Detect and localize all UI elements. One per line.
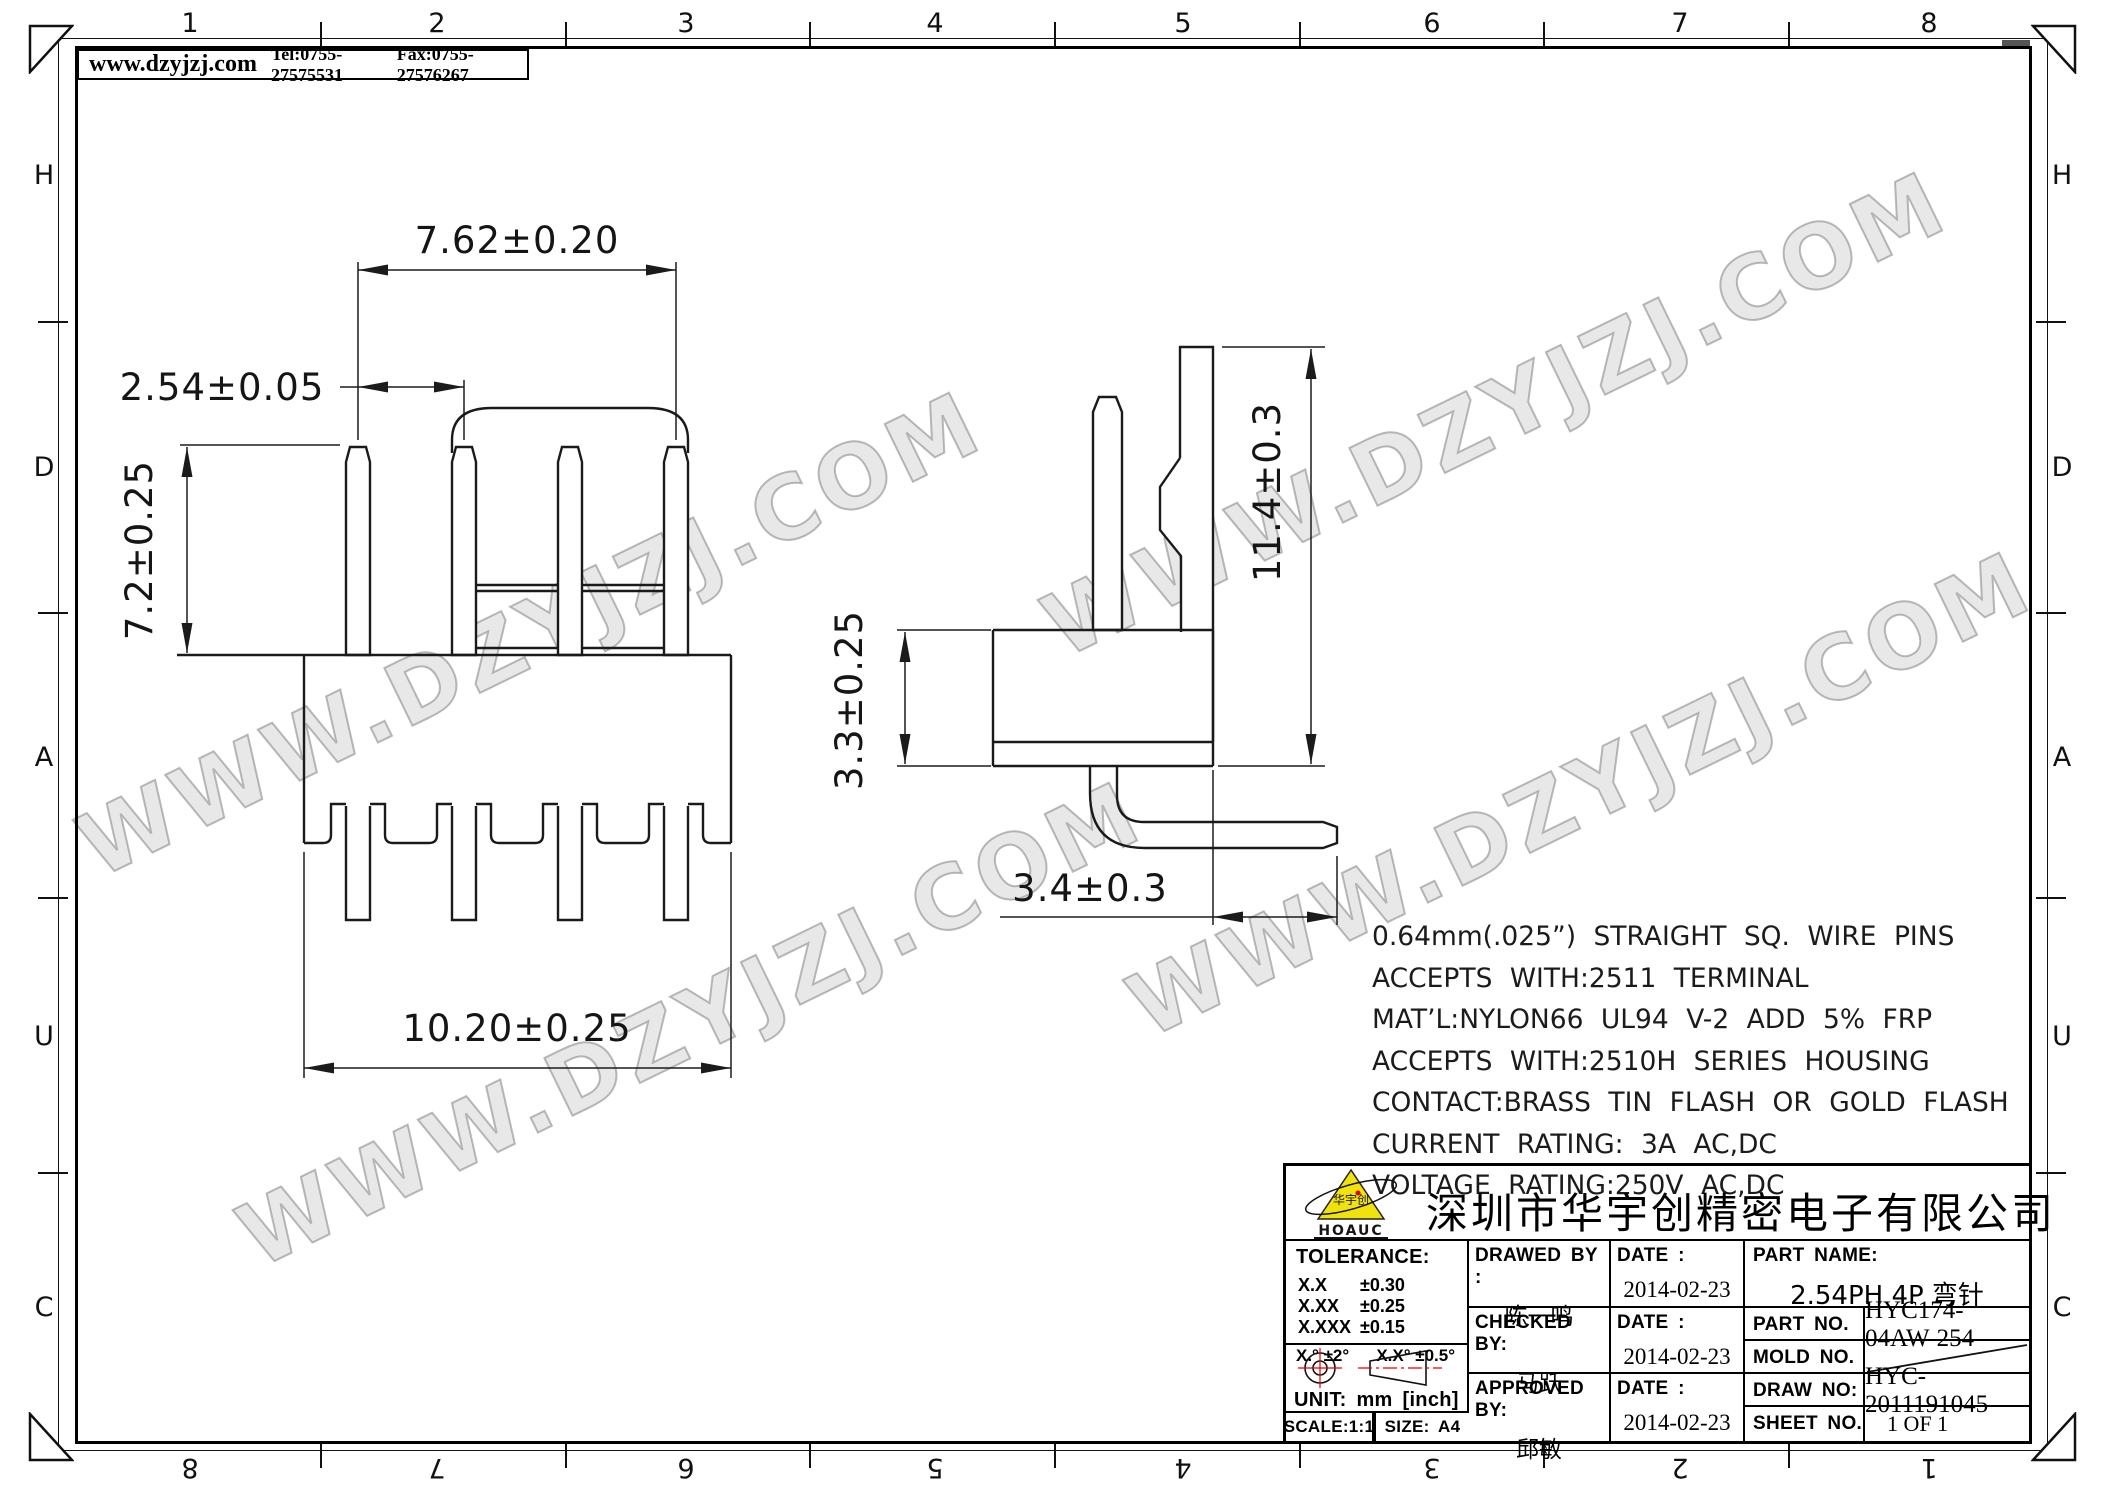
projection-symbol-icon (1286, 1345, 1469, 1389)
date-label: DATE : (1617, 1312, 1737, 1334)
dim-overall-height: 11.4±0.3 (1246, 402, 1289, 582)
logo-name: HOAUC (1318, 1223, 1383, 1239)
approved-by-cell: APPROVED BY: 邱敏 (1469, 1374, 1611, 1441)
drawed-date: 2014-02-23 (1617, 1277, 1737, 1303)
date-label: DATE : (1617, 1378, 1737, 1400)
logo-dot-icon (1356, 1191, 1361, 1196)
checked-date: 2014-02-23 (1617, 1344, 1737, 1370)
approved-by-label: APPROVED BY: (1475, 1378, 1603, 1422)
spec-note-line: MAT’L:NYLON66 UL94 V-2 ADD 5% FRP (1372, 999, 2037, 1041)
spec-note-line: ACCEPTS WITH:2510H SERIES HOUSING (1372, 1041, 2037, 1083)
drawed-date-cell: DATE : 2014-02-23 (1611, 1241, 1745, 1308)
tolerance-row-value: ±0.30 (1360, 1275, 1405, 1296)
draw-no-label: DRAW NO: (1745, 1374, 1865, 1407)
approved-date: 2014-02-23 (1617, 1410, 1737, 1436)
sheet-no-label: SHEET NO. (1745, 1407, 1865, 1441)
tolerance-cell: TOLERANCE: X.X±0.30 X.XX±0.25 X.XXX±0.15… (1286, 1241, 1469, 1345)
tolerance-title: TOLERANCE: (1286, 1246, 1467, 1269)
logo-mark: 华宇创 (1333, 1193, 1369, 1207)
sheet-no-cell: SHEET NO. 1 OF 1 (1745, 1407, 2029, 1441)
draw-no-value: HYC-2011191045 (1865, 1374, 2029, 1407)
sheet-no-value: 1 OF 1 (1865, 1407, 2029, 1441)
spec-note-line: CURRENT RATING: 3A AC,DC (1372, 1124, 2037, 1166)
draw-no-cell: DRAW NO: HYC-2011191045 (1745, 1374, 2029, 1407)
dim-pitch: 2.54±0.05 (120, 366, 325, 409)
drawed-by-cell: DRAWED BY : 陈一鸣 (1469, 1241, 1611, 1308)
company-name: 深圳市华宇创精密电子有限公司 (1426, 1180, 2026, 1241)
checked-by-label: CHECKED BY: (1475, 1312, 1603, 1356)
dim-tail-length: 3.4±0.3 (1012, 867, 1168, 910)
checked-date-cell: DATE : 2014-02-23 (1611, 1308, 1745, 1374)
unit-label: UNIT: mm [inch] (1294, 1389, 1459, 1412)
checked-by-cell: CHECKED BY: 马跃 (1469, 1308, 1611, 1374)
spec-note-line: CONTACT:BRASS TIN FLASH OR GOLD FLASH (1372, 1082, 2037, 1124)
size-label: SIZE: A4 (1385, 1417, 1461, 1437)
front-view (177, 408, 731, 920)
mold-no-label: MOLD NO. (1745, 1341, 1865, 1374)
tolerance-row-value: ±0.15 (1360, 1317, 1405, 1338)
scale-label: SCALE:1:1 (1284, 1417, 1375, 1437)
date-label: DATE : (1617, 1245, 1737, 1267)
tolerance-row-label: X.XX (1298, 1296, 1360, 1317)
part-no-value: HYC174-04AW-254 (1865, 1308, 2029, 1341)
dim-pitch-total: 7.62±0.20 (415, 219, 620, 262)
approved-by-name: 邱敏 (1475, 1430, 1603, 1464)
projection-cell: UNIT: mm [inch] (1286, 1345, 1469, 1413)
dim-pin-length: 7.2±0.25 (118, 460, 161, 640)
tolerance-row-value: ±0.25 (1360, 1296, 1405, 1317)
part-no-cell: PART NO. HYC174-04AW-254 (1745, 1308, 2029, 1341)
part-no-label: PART NO. (1745, 1308, 1865, 1341)
scale-cell: SCALE:1:1 (1286, 1413, 1374, 1441)
dim-housing-height: 3.3±0.25 (828, 610, 871, 790)
tolerance-row-label: X.X (1298, 1275, 1360, 1296)
size-cell: SIZE: A4 (1374, 1413, 1469, 1441)
tolerance-row-label: X.XXX (1298, 1317, 1360, 1338)
title-block: 华宇创 HOAUC 深圳市华宇创精密电子有限公司 TOLERANCE: X.X±… (1283, 1163, 2032, 1444)
dim-housing-width: 10.20±0.25 (402, 1007, 631, 1050)
spec-note-line: 0.64mm(.025”) STRAIGHT SQ. WIRE PINS (1372, 916, 2037, 958)
title-block-header: 华宇创 HOAUC 深圳市华宇创精密电子有限公司 (1286, 1166, 2029, 1241)
drawed-by-label: DRAWED BY : (1475, 1245, 1603, 1289)
spec-note-line: ACCEPTS WITH:2511 TERMINAL (1372, 958, 2037, 1000)
part-name-label: PART NAME: (1753, 1245, 2021, 1267)
company-logo: 华宇创 HOAUC (1294, 1166, 1414, 1241)
approved-date-cell: DATE : 2014-02-23 (1611, 1374, 1745, 1441)
